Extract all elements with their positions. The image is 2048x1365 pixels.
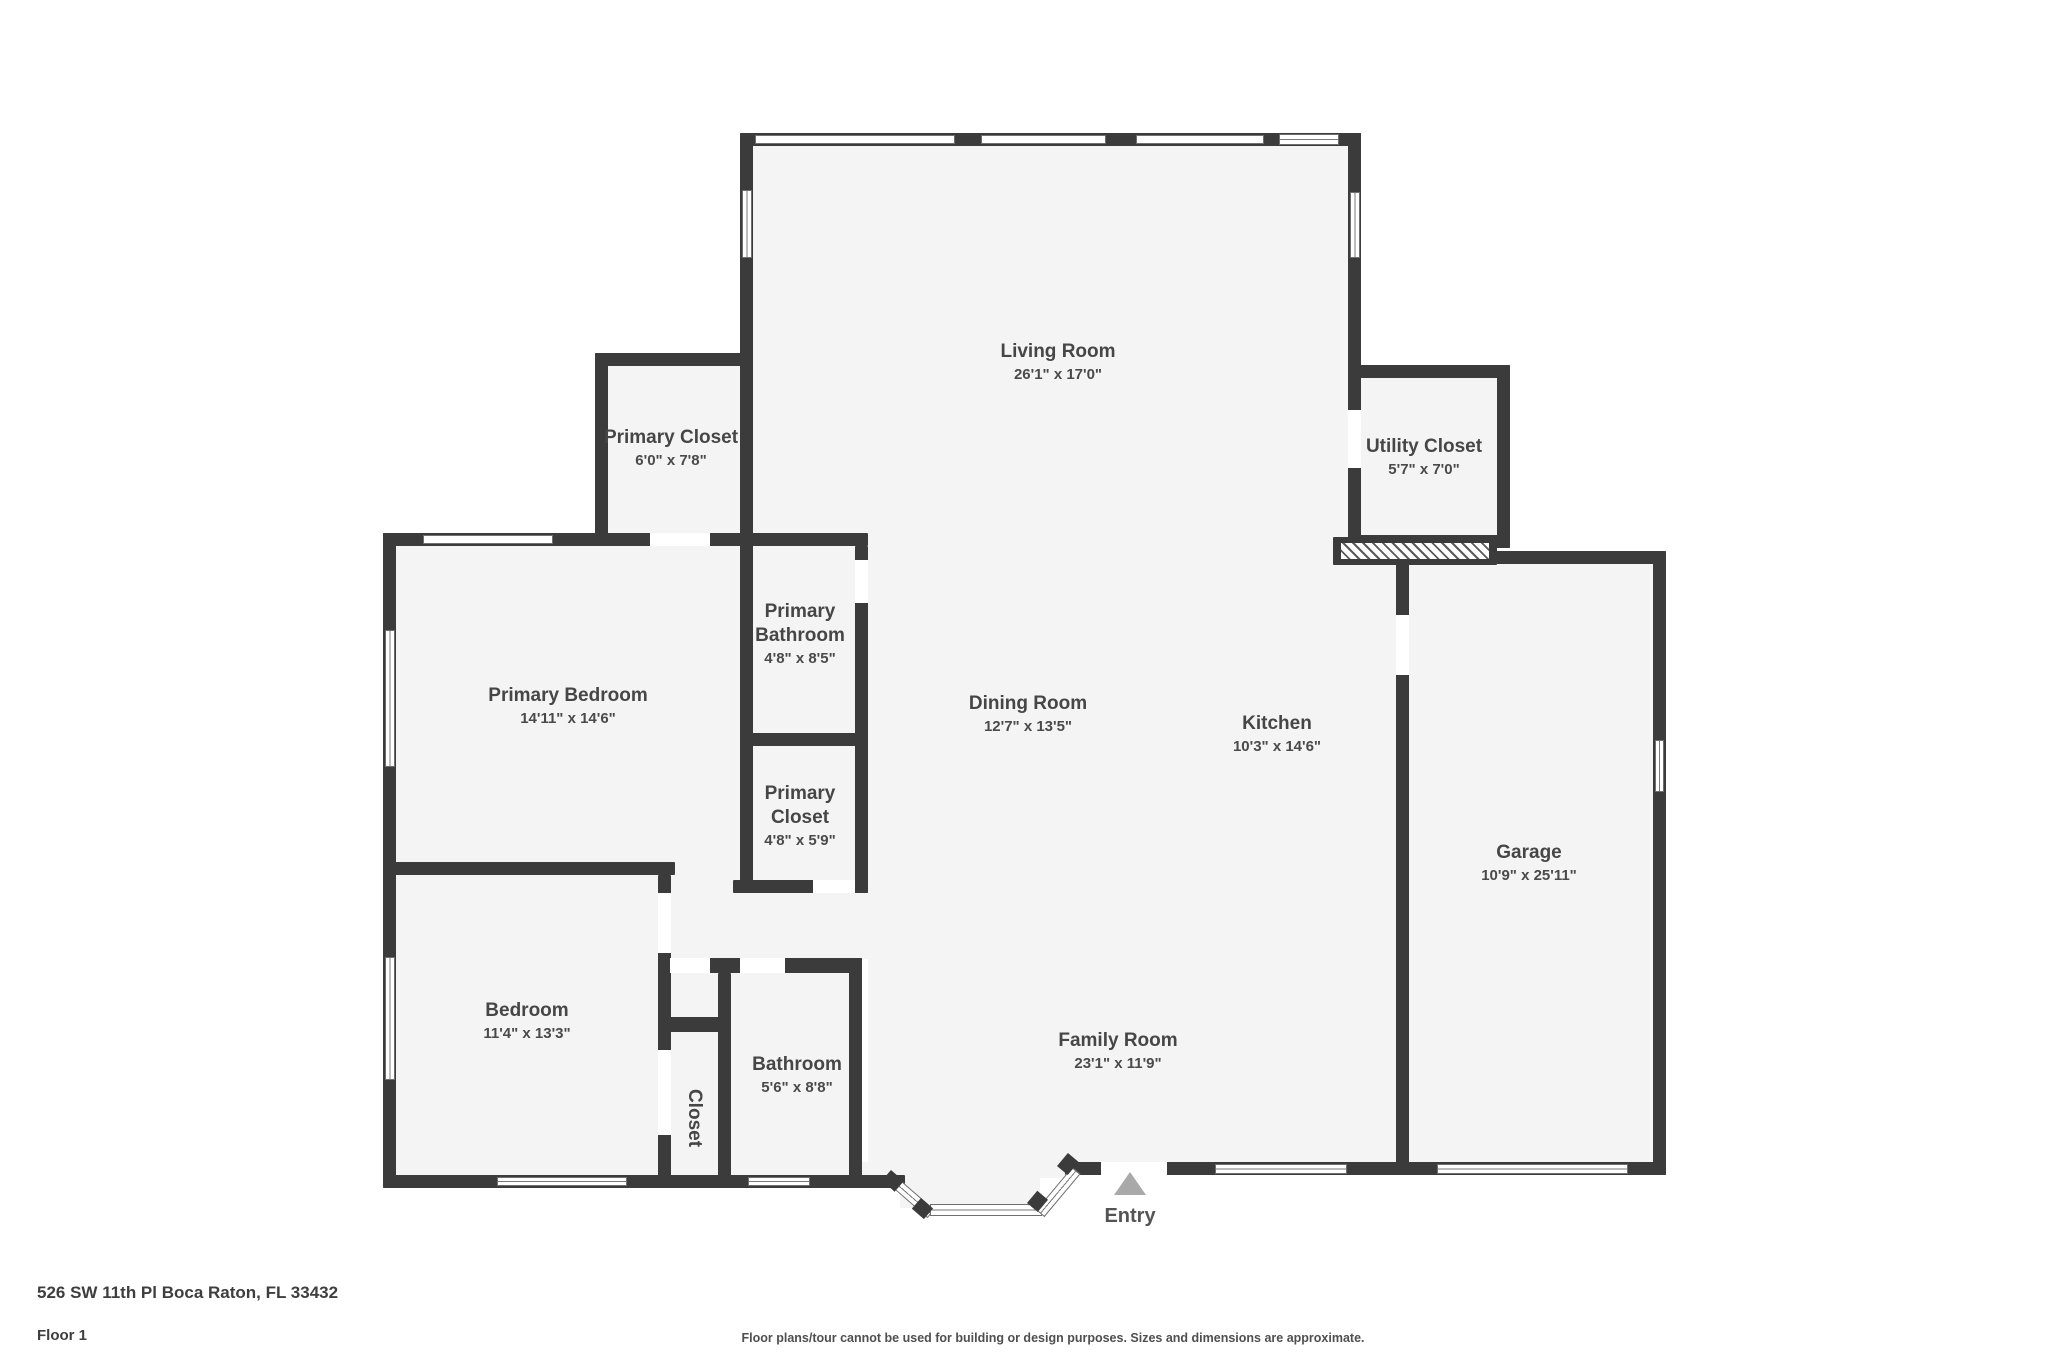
- window: [385, 630, 395, 767]
- floor-number-label: Floor 1: [37, 1327, 87, 1344]
- window: [423, 535, 553, 544]
- floorplan-canvas: Entry Living Room26'1" x 17'0"Primary Cl…: [0, 0, 2048, 1365]
- window: [1655, 740, 1664, 792]
- room-label-primary-closet-top: Primary Closet6'0" x 7'8": [604, 426, 738, 469]
- room-name: Bathroom: [752, 1053, 842, 1077]
- wall-segment: [849, 958, 862, 1188]
- room-dimensions: 4'8" x 5'9": [745, 832, 855, 849]
- wall-segment: [383, 862, 675, 875]
- door-opening: [650, 533, 710, 546]
- wall-segment: [1348, 365, 1510, 378]
- entry-arrow-icon: [1114, 1172, 1146, 1195]
- entry-label: Entry: [1104, 1205, 1155, 1228]
- room-label-utility-closet: Utility Closet5'7" x 7'0": [1366, 435, 1482, 478]
- room-name: Primary Bathroom: [740, 600, 860, 648]
- room-label-primary-bedroom: Primary Bedroom14'11" x 14'6": [488, 684, 647, 727]
- room-name: Primary Bedroom: [488, 684, 647, 708]
- wall-segment: [1497, 365, 1510, 548]
- wall-segment: [1653, 551, 1666, 1175]
- room-label-family-room: Family Room23'1" x 11'9": [1058, 1029, 1177, 1072]
- room-dimensions: 6'0" x 7'8": [604, 452, 738, 469]
- room-name: Living Room: [1000, 340, 1115, 364]
- door-opening: [855, 560, 868, 603]
- window: [1215, 1164, 1347, 1174]
- room-dimensions: 26'1" x 17'0": [1000, 366, 1115, 383]
- door-opening: [740, 958, 785, 973]
- door-opening: [658, 893, 671, 953]
- room-label-garage: Garage10'9" x 25'11": [1481, 841, 1577, 884]
- room-dimensions: 12'7" x 13'5": [969, 718, 1087, 735]
- room-label-closet: Closet: [682, 1089, 706, 1147]
- room-name: Closet: [682, 1089, 706, 1147]
- room-dimensions: 4'8" x 8'5": [740, 650, 860, 667]
- wall-segment: [595, 353, 753, 366]
- room-label-kitchen: Kitchen10'3" x 14'6": [1233, 712, 1321, 755]
- door-opening: [1396, 615, 1409, 675]
- window: [981, 135, 1106, 144]
- wall-segment: [1488, 551, 1666, 564]
- floor-area: [671, 973, 719, 1018]
- room-label-bathroom: Bathroom5'6" x 8'8": [752, 1053, 842, 1096]
- window: [1437, 1164, 1628, 1174]
- window: [1136, 135, 1264, 144]
- room-name: Primary Closet: [745, 782, 855, 830]
- window: [755, 135, 955, 144]
- room-dimensions: 23'1" x 11'9": [1058, 1055, 1177, 1072]
- room-name: Family Room: [1058, 1029, 1177, 1053]
- wall-segment: [740, 733, 868, 746]
- room-name: Bedroom: [483, 999, 570, 1023]
- room-label-dining-room: Dining Room12'7" x 13'5": [969, 692, 1087, 735]
- door-opening: [670, 958, 710, 973]
- window: [748, 1177, 810, 1186]
- room-label-bedroom: Bedroom11'4" x 13'3": [483, 999, 570, 1042]
- room-dimensions: 11'4" x 13'3": [483, 1025, 570, 1042]
- wall-segment: [718, 973, 731, 1188]
- room-dimensions: 5'7" x 7'0": [1366, 461, 1482, 478]
- hatch-area: [1341, 543, 1489, 559]
- room-dimensions: 5'6" x 8'8": [752, 1079, 842, 1096]
- door-opening: [1348, 410, 1361, 468]
- disclaimer-text: Floor plans/tour cannot be used for buil…: [741, 1331, 1364, 1345]
- room-label-living-room: Living Room26'1" x 17'0": [1000, 340, 1115, 383]
- room-name: Dining Room: [969, 692, 1087, 716]
- floor-area: [849, 893, 869, 959]
- window: [1350, 192, 1360, 258]
- room-dimensions: 10'3" x 14'6": [1233, 738, 1321, 755]
- room-name: Kitchen: [1233, 712, 1321, 736]
- room-label-primary-closet: Primary Closet4'8" x 5'9": [745, 782, 855, 849]
- window: [497, 1177, 627, 1186]
- window: [385, 957, 395, 1080]
- property-address: 526 SW 11th Pl Boca Raton, FL 33432: [37, 1283, 338, 1303]
- room-name: Utility Closet: [1366, 435, 1482, 459]
- room-name: Primary Closet: [604, 426, 738, 450]
- room-dimensions: 10'9" x 25'11": [1481, 867, 1577, 884]
- room-dimensions: 14'11" x 14'6": [488, 710, 647, 727]
- wall-segment: [383, 1175, 905, 1188]
- door-opening: [813, 880, 855, 893]
- bay-window-center: [930, 1204, 1042, 1216]
- window: [1279, 134, 1339, 145]
- door-opening: [658, 1050, 671, 1135]
- window: [742, 190, 752, 258]
- room-name: Garage: [1481, 841, 1577, 865]
- room-label-primary-bathroom: Primary Bathroom4'8" x 8'5": [740, 600, 860, 667]
